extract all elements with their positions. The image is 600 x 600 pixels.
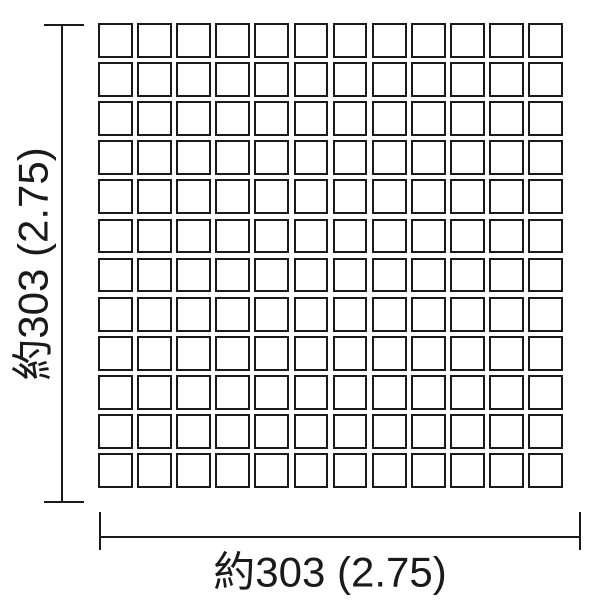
tile-cell xyxy=(294,258,329,293)
tile-cell xyxy=(137,336,172,371)
tile-cell xyxy=(215,179,250,214)
tile-cell xyxy=(294,62,329,97)
tile-cell xyxy=(372,414,407,449)
width-dimension-label: 約303 (2.75) xyxy=(213,539,446,600)
tile-cell xyxy=(411,375,446,410)
tile-cell xyxy=(176,23,211,58)
tile-cell xyxy=(450,336,485,371)
horizontal-dimension-left-tick xyxy=(99,512,101,550)
tile-cell xyxy=(411,179,446,214)
tile-cell xyxy=(372,453,407,488)
tile-cell xyxy=(450,219,485,254)
horizontal-dimension-right-tick xyxy=(579,512,581,550)
tile-cell xyxy=(98,140,133,175)
tile-cell xyxy=(489,336,524,371)
tile-cell xyxy=(450,62,485,97)
tile-cell xyxy=(411,23,446,58)
tile-cell xyxy=(254,179,289,214)
tile-cell xyxy=(294,453,329,488)
tile-cell xyxy=(176,297,211,332)
tile-cell xyxy=(372,23,407,58)
tile-cell xyxy=(411,336,446,371)
tile-cell xyxy=(489,453,524,488)
tile-cell xyxy=(333,140,368,175)
tile-cell xyxy=(372,140,407,175)
tile-cell xyxy=(254,62,289,97)
tile-cell xyxy=(372,375,407,410)
tile-cell xyxy=(528,219,563,254)
tile-cell xyxy=(294,336,329,371)
tile-cell xyxy=(450,414,485,449)
tile-cell xyxy=(450,297,485,332)
tile-cell xyxy=(294,101,329,136)
tile-cell xyxy=(333,101,368,136)
tile-cell xyxy=(528,101,563,136)
tile-cell xyxy=(137,414,172,449)
tile-cell xyxy=(450,101,485,136)
tile-cell xyxy=(294,219,329,254)
tile-cell xyxy=(372,62,407,97)
tile-cell xyxy=(333,258,368,293)
tile-cell xyxy=(450,179,485,214)
tile-cell xyxy=(411,62,446,97)
tile-cell xyxy=(372,336,407,371)
tile-cell xyxy=(489,219,524,254)
tile-cell xyxy=(489,62,524,97)
tile-cell xyxy=(98,414,133,449)
tile-cell xyxy=(254,23,289,58)
tile-cell xyxy=(411,140,446,175)
vertical-dimension-line xyxy=(61,25,63,502)
tile-cell xyxy=(294,297,329,332)
tile-cell xyxy=(137,140,172,175)
tile-cell xyxy=(137,297,172,332)
tile-cell xyxy=(294,23,329,58)
tile-cell xyxy=(98,297,133,332)
tile-cell xyxy=(98,179,133,214)
tile-cell xyxy=(333,414,368,449)
tile-cell xyxy=(176,179,211,214)
tile-cell xyxy=(372,179,407,214)
tile-cell xyxy=(528,414,563,449)
tile-cell xyxy=(98,375,133,410)
tile-cell xyxy=(372,297,407,332)
tile-cell xyxy=(450,258,485,293)
tile-cell xyxy=(489,375,524,410)
tile-cell xyxy=(528,258,563,293)
tile-cell xyxy=(450,375,485,410)
tile-cell xyxy=(137,258,172,293)
tile-cell xyxy=(450,140,485,175)
tile-cell xyxy=(176,414,211,449)
tile-cell xyxy=(489,140,524,175)
tile-cell xyxy=(98,258,133,293)
tile-cell xyxy=(215,375,250,410)
tile-cell xyxy=(333,62,368,97)
tile-cell xyxy=(528,453,563,488)
tile-cell xyxy=(176,62,211,97)
tile-sheet-diagram: 約303 (2.75) 約303 (2.75) xyxy=(0,0,600,600)
tile-cell xyxy=(215,453,250,488)
tile-cell xyxy=(98,23,133,58)
tile-cell xyxy=(98,219,133,254)
tile-cell xyxy=(98,336,133,371)
vertical-dimension-top-cap xyxy=(44,24,84,26)
tile-cell xyxy=(254,414,289,449)
tile-cell xyxy=(215,23,250,58)
tile-cell xyxy=(254,453,289,488)
tile-cell xyxy=(489,101,524,136)
tile-cell xyxy=(528,23,563,58)
tile-cell xyxy=(528,336,563,371)
tile-cell xyxy=(372,258,407,293)
tile-grid xyxy=(98,23,563,488)
tile-cell xyxy=(254,258,289,293)
tile-cell xyxy=(254,101,289,136)
tile-cell xyxy=(98,453,133,488)
tile-cell xyxy=(137,453,172,488)
tile-cell xyxy=(176,219,211,254)
tile-cell xyxy=(254,336,289,371)
tile-cell xyxy=(333,219,368,254)
tile-cell xyxy=(254,375,289,410)
tile-cell xyxy=(411,219,446,254)
tile-cell xyxy=(333,336,368,371)
vertical-dimension-bottom-cap xyxy=(44,501,84,503)
tile-cell xyxy=(176,140,211,175)
tile-cell xyxy=(489,179,524,214)
tile-cell xyxy=(176,336,211,371)
tile-cell xyxy=(333,375,368,410)
tile-cell xyxy=(489,23,524,58)
height-dimension-label: 約303 (2.75) xyxy=(0,147,61,380)
tile-cell xyxy=(176,258,211,293)
tile-cell xyxy=(450,23,485,58)
tile-cell xyxy=(411,453,446,488)
tile-cell xyxy=(137,375,172,410)
tile-cell xyxy=(215,258,250,293)
tile-cell xyxy=(489,414,524,449)
tile-cell xyxy=(333,453,368,488)
tile-cell xyxy=(411,414,446,449)
tile-cell xyxy=(254,140,289,175)
tile-cell xyxy=(137,219,172,254)
tile-cell xyxy=(528,375,563,410)
tile-cell xyxy=(489,258,524,293)
tile-cell xyxy=(254,297,289,332)
tile-cell xyxy=(215,219,250,254)
tile-cell xyxy=(528,297,563,332)
tile-cell xyxy=(372,219,407,254)
tile-cell xyxy=(294,179,329,214)
tile-cell xyxy=(450,453,485,488)
tile-cell xyxy=(294,140,329,175)
tile-cell xyxy=(528,179,563,214)
tile-cell xyxy=(489,297,524,332)
tile-cell xyxy=(98,62,133,97)
tile-cell xyxy=(254,219,289,254)
tile-cell xyxy=(215,62,250,97)
tile-cell xyxy=(137,23,172,58)
tile-cell xyxy=(528,140,563,175)
tile-cell xyxy=(528,62,563,97)
tile-cell xyxy=(176,453,211,488)
tile-cell xyxy=(137,101,172,136)
tile-cell xyxy=(215,336,250,371)
tile-cell xyxy=(333,23,368,58)
tile-cell xyxy=(215,101,250,136)
tile-cell xyxy=(294,375,329,410)
tile-cell xyxy=(176,375,211,410)
tile-cell xyxy=(294,414,329,449)
tile-cell xyxy=(137,179,172,214)
tile-cell xyxy=(98,101,133,136)
tile-cell xyxy=(215,140,250,175)
tile-cell xyxy=(215,297,250,332)
tile-cell xyxy=(411,297,446,332)
tile-cell xyxy=(137,62,172,97)
tile-cell xyxy=(333,179,368,214)
tile-cell xyxy=(411,258,446,293)
tile-cell xyxy=(372,101,407,136)
tile-cell xyxy=(176,101,211,136)
tile-cell xyxy=(215,414,250,449)
tile-cell xyxy=(411,101,446,136)
tile-cell xyxy=(333,297,368,332)
